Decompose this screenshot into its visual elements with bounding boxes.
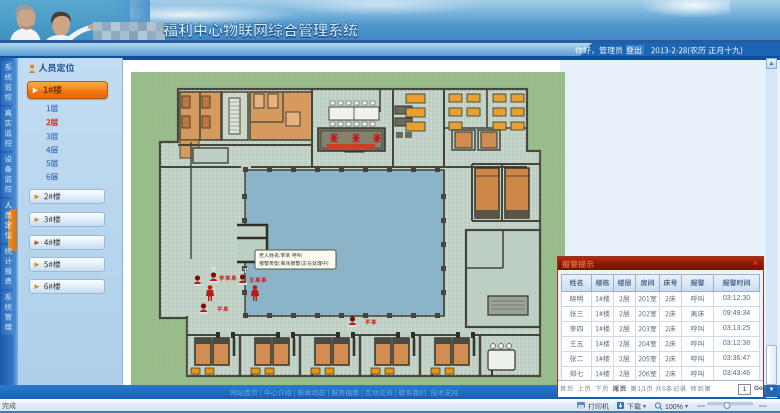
svg-text:报警类型:离床报警(正在处理中): 报警类型:离床报警(正在处理中) (259, 260, 329, 267)
svg-text:王某某: 王某某 (249, 276, 266, 284)
svg-text:下载: 下载 (627, 402, 641, 411)
svg-text:平某: 平某 (365, 318, 377, 326)
svg-text:李某某: 李某某 (218, 274, 236, 282)
svg-text:平某: 平某 (217, 305, 229, 313)
svg-text:打印机: 打印机 (588, 402, 609, 411)
svg-text:100%: 100% (665, 404, 683, 411)
svg-text:老人姓名:李某 呼叫: 老人姓名:李某 呼叫 (259, 252, 302, 259)
